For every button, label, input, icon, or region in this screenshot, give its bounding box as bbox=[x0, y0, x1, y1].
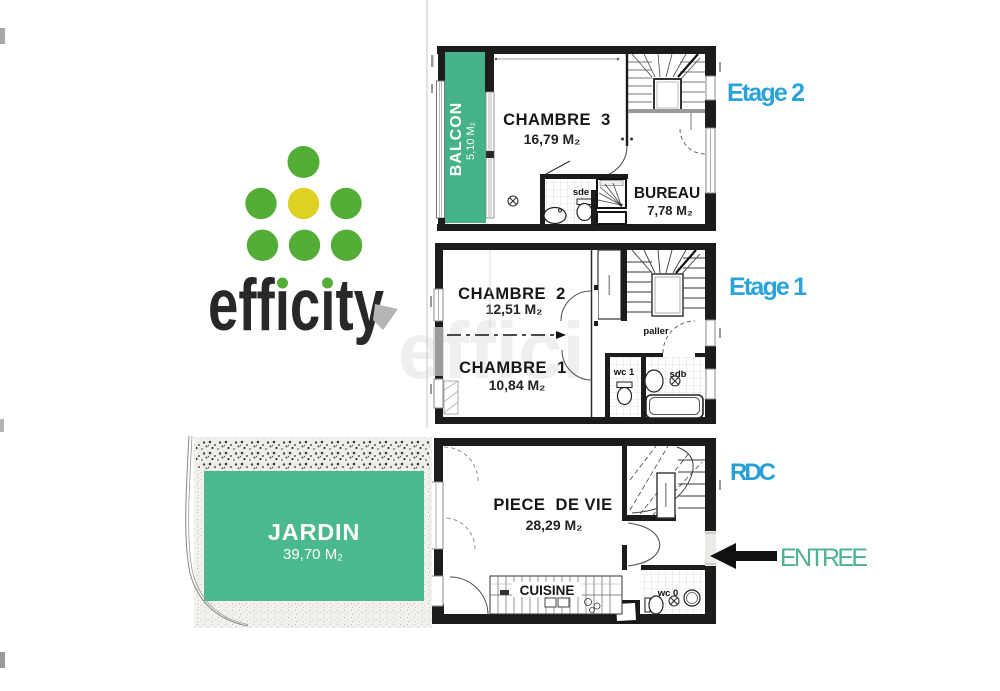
svg-text:sde: sde bbox=[573, 187, 589, 198]
svg-text:CHAMBRE 1: CHAMBRE 1 bbox=[459, 359, 567, 377]
svg-text:7,78 M₂: 7,78 M₂ bbox=[647, 203, 693, 218]
svg-text:PIECE DE VIE: PIECE DE VIE bbox=[493, 496, 612, 514]
svg-text:5,10 M₂: 5,10 M₂ bbox=[465, 122, 477, 160]
svg-text:CHAMBRE 3: CHAMBRE 3 bbox=[503, 111, 611, 129]
svg-text:Etage 1: Etage 1 bbox=[729, 273, 807, 301]
svg-text:28,29 M₂: 28,29 M₂ bbox=[526, 517, 583, 533]
svg-text:RDC: RDC bbox=[730, 459, 776, 486]
svg-text:10,84 M₂: 10,84 M₂ bbox=[489, 377, 546, 393]
svg-text:16,79 M₂: 16,79 M₂ bbox=[524, 131, 581, 147]
svg-text:BUREAU: BUREAU bbox=[634, 185, 700, 202]
svg-text:CUISINE: CUISINE bbox=[520, 583, 575, 598]
svg-text:12,51 M₂: 12,51 M₂ bbox=[486, 301, 543, 317]
svg-text:ENTREE: ENTREE bbox=[780, 544, 868, 572]
svg-text:BALCON: BALCON bbox=[448, 102, 465, 176]
svg-text:wc 1: wc 1 bbox=[613, 367, 635, 378]
svg-text:39,70 M₂: 39,70 M₂ bbox=[283, 546, 343, 563]
svg-text:JARDIN: JARDIN bbox=[268, 519, 360, 545]
svg-text:effıcıty: effıcıty bbox=[208, 265, 384, 346]
svg-text:paller: paller bbox=[643, 326, 669, 337]
svg-text:Etage 2: Etage 2 bbox=[727, 79, 805, 107]
